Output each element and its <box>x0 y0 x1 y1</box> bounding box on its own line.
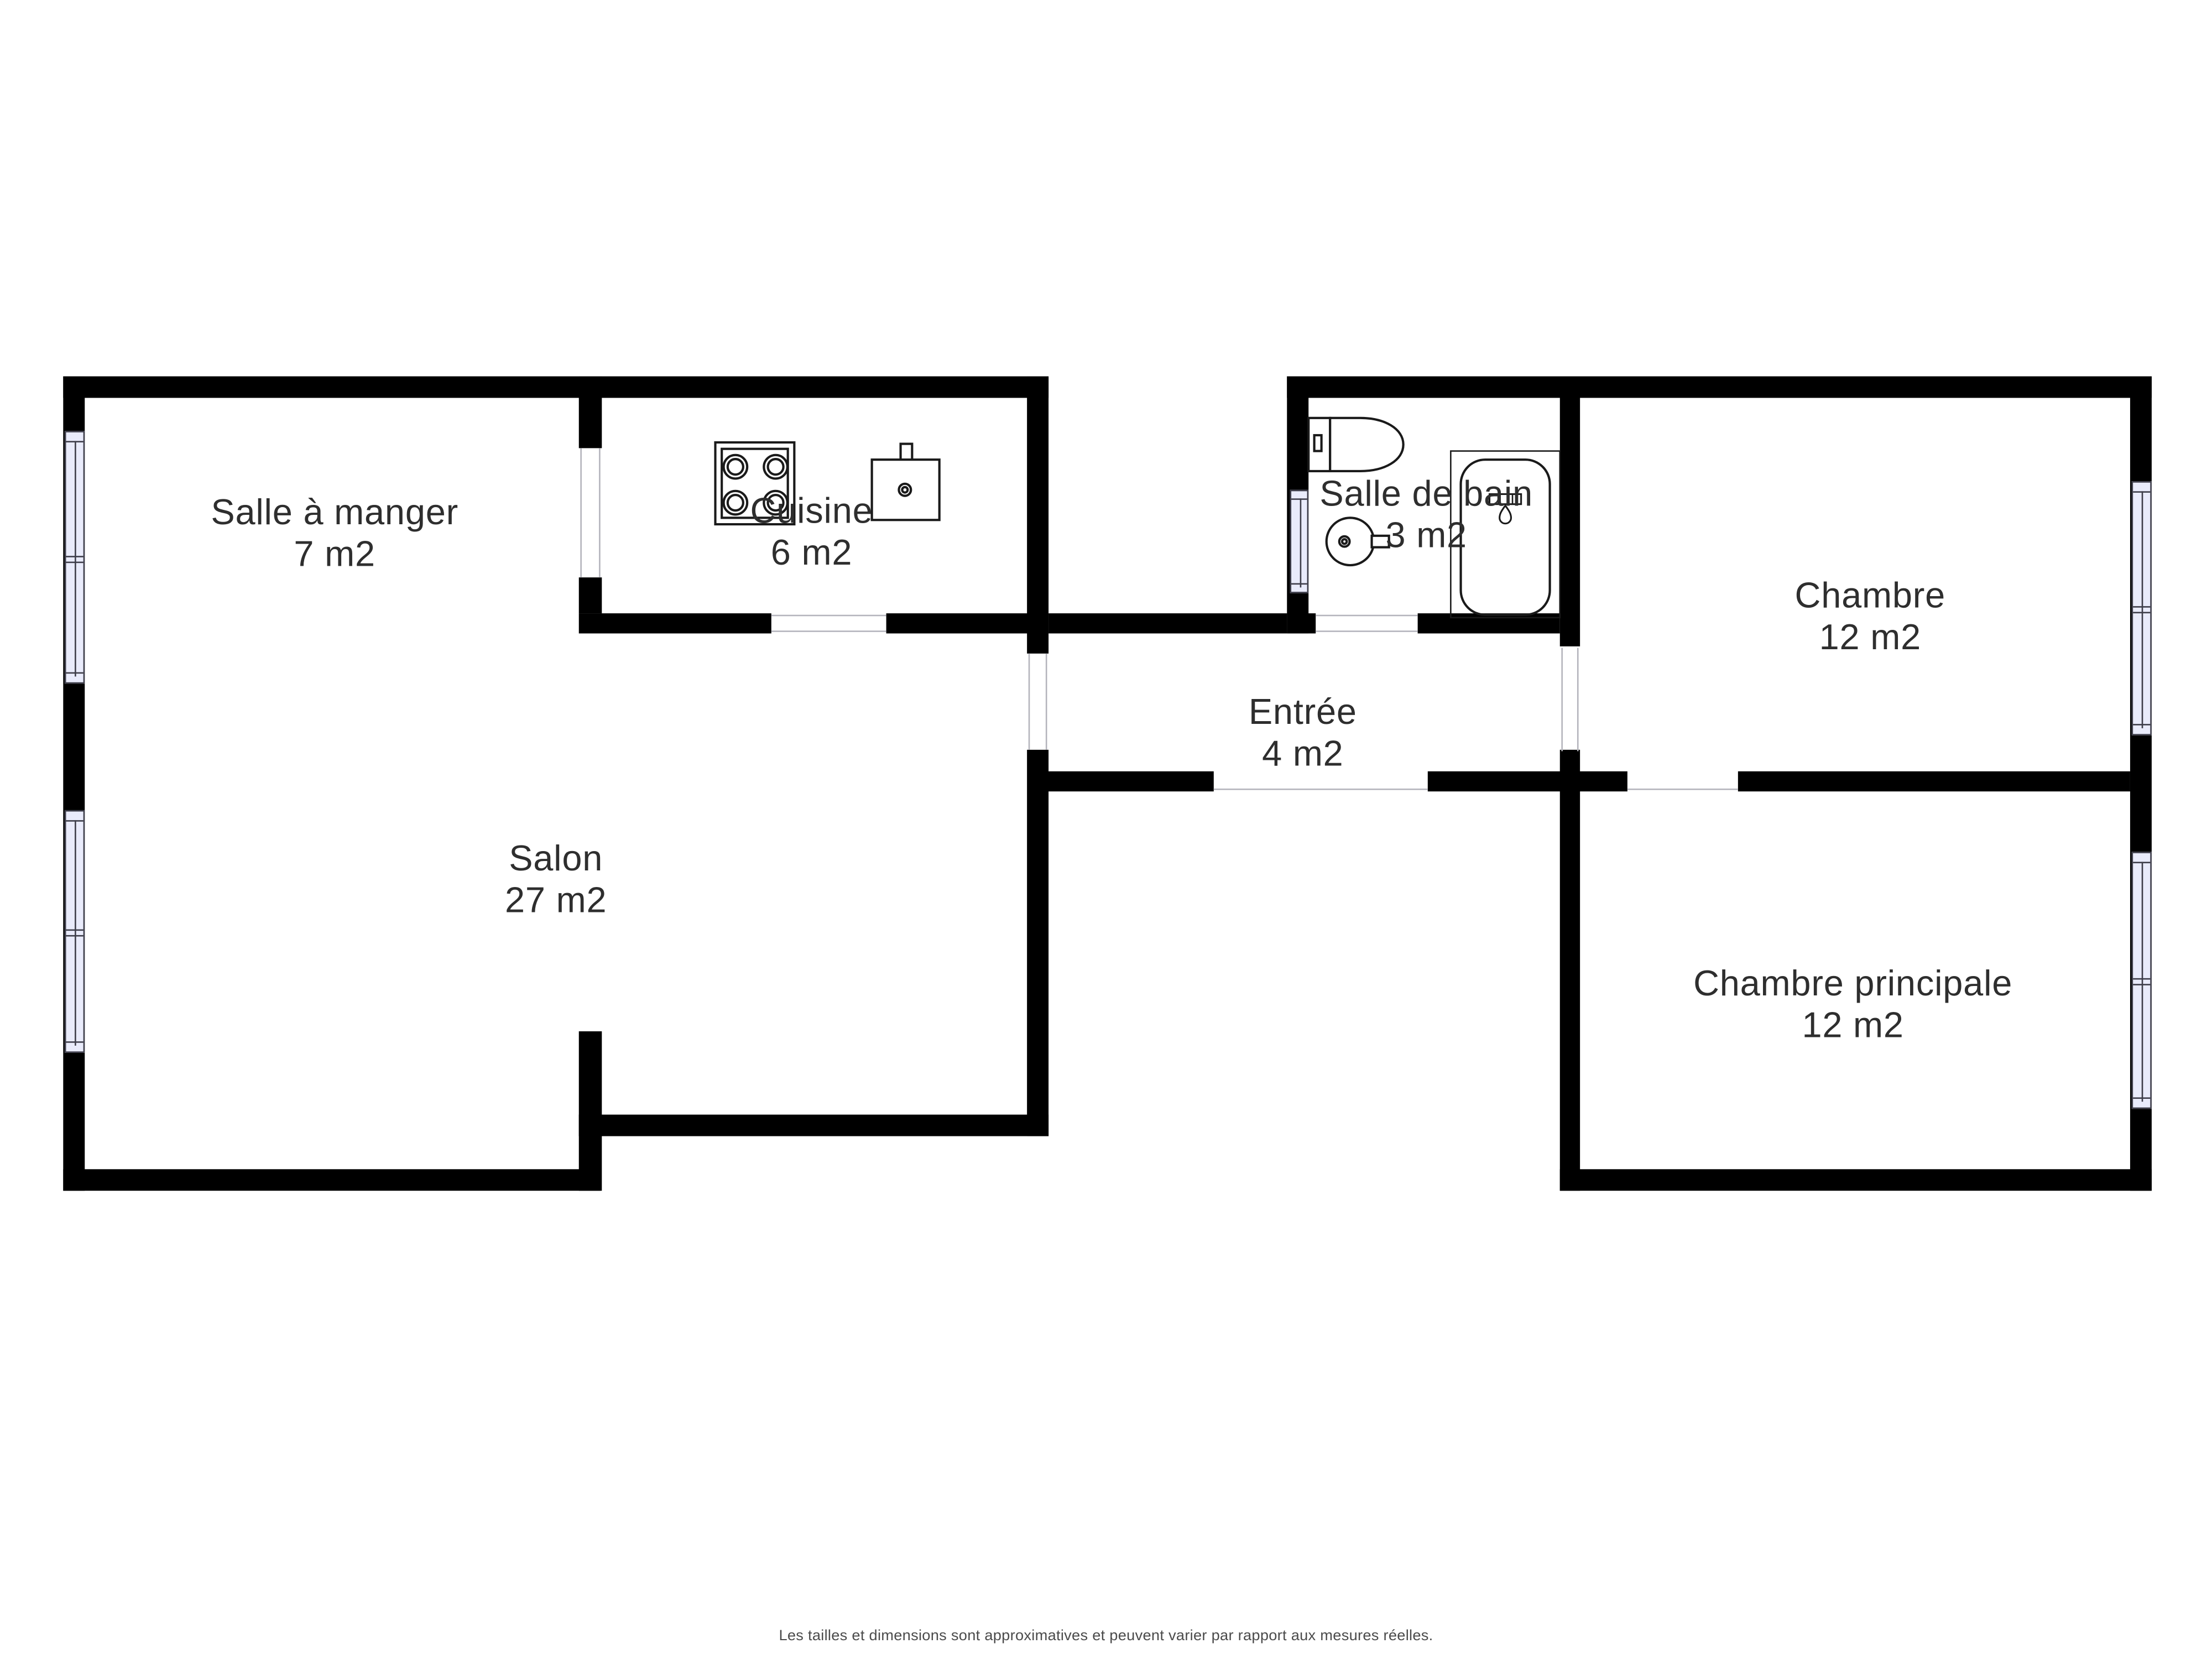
room-name: Salle à manger <box>211 493 458 534</box>
room-label-chambre: Chambre 12 m2 <box>1795 576 1946 660</box>
door-sam-cuisine <box>580 448 582 577</box>
door-salle-de-bain <box>1316 615 1417 617</box>
door-chambre-entree <box>1561 648 1563 751</box>
room-label-salle-a-manger: Salle à manger 7 m2 <box>211 493 458 576</box>
wall-chambre-divider-right <box>1738 771 2130 791</box>
wall-salon-right-upper <box>1027 377 1048 654</box>
window-right-lower <box>2131 852 2151 1109</box>
kitchen-sink-icon <box>872 444 940 520</box>
wall-top-left-block <box>63 377 1048 398</box>
toilet-icon <box>1308 418 1403 471</box>
door-cuisine <box>771 615 886 617</box>
wall-cuisine-bottom-a <box>579 613 771 633</box>
door-salon-entree <box>1029 654 1030 750</box>
wall-entree-bottom-b <box>1428 771 1627 791</box>
disclaimer-text: Les tailles et dimensions sont approxima… <box>779 1627 1433 1645</box>
room-area: 7 m2 <box>211 534 458 576</box>
door-salle-de-bain-2 <box>1316 630 1417 632</box>
room-name: Chambre <box>1795 576 1946 618</box>
door-salon-entree-2 <box>1046 654 1047 750</box>
door-entrance <box>1214 789 1428 790</box>
wall-divider-sam-cuisine-lower <box>579 577 602 613</box>
room-label-entree: Entrée 4 m2 <box>1249 692 1357 776</box>
wall-entree-bottom-a <box>1037 771 1213 791</box>
window-left-lower <box>64 810 84 1053</box>
window-right-upper <box>2131 481 2151 735</box>
room-area: 27 m2 <box>505 880 607 922</box>
wall-salon-step-vertical <box>579 1031 602 1191</box>
window-bathroom <box>1289 490 1308 593</box>
room-name: Salle de bain <box>1319 474 1533 515</box>
wall-cuisine-bottom-b <box>886 613 1049 633</box>
wall-chambre-left-lower <box>1560 750 1580 1191</box>
room-label-chambre-principale: Chambre principale 12 m2 <box>1693 964 2012 1047</box>
wall-salon-bottom-right <box>579 1115 1048 1136</box>
wall-divider-sam-cuisine-upper <box>579 377 602 448</box>
window-left-upper <box>64 431 84 684</box>
wall-salon-right-lower <box>1027 750 1048 1136</box>
room-area: 12 m2 <box>1693 1005 2012 1047</box>
room-name: Entrée <box>1249 692 1357 734</box>
room-label-salon: Salon 27 m2 <box>505 839 607 922</box>
wall-top-right-block <box>1287 377 2152 398</box>
floor-plan: Salle à manger 7 m2 Cuisine 6 m2 Salle d… <box>0 0 2212 1659</box>
wall-bottom-right-block <box>1560 1169 2152 1191</box>
room-area: 4 m2 <box>1249 734 1357 775</box>
wall-bathroom-bottom-stub <box>1287 613 1316 633</box>
door-chambre-entree-2 <box>1577 648 1579 751</box>
room-label-salle-de-bain: Salle de bain 3 m2 <box>1319 474 1533 557</box>
wall-chambre-left-upper <box>1560 377 1580 646</box>
room-area: 6 m2 <box>750 533 873 575</box>
wall-bottom-left-block <box>63 1169 600 1191</box>
room-area: 12 m2 <box>1795 618 1946 659</box>
room-name: Chambre principale <box>1693 964 2012 1005</box>
room-name: Salon <box>505 839 607 880</box>
door-chambre-principale <box>1627 789 1738 790</box>
room-name: Cuisine <box>750 491 873 533</box>
room-area: 3 m2 <box>1319 515 1533 557</box>
door-sam-cuisine-2 <box>599 448 601 577</box>
wall-entree-top <box>1048 613 1287 633</box>
door-cuisine-2 <box>771 630 886 632</box>
wall-bathroom-bottom <box>1418 613 1560 633</box>
fixtures-layer <box>0 0 2212 1659</box>
room-label-cuisine: Cuisine 6 m2 <box>750 491 873 575</box>
